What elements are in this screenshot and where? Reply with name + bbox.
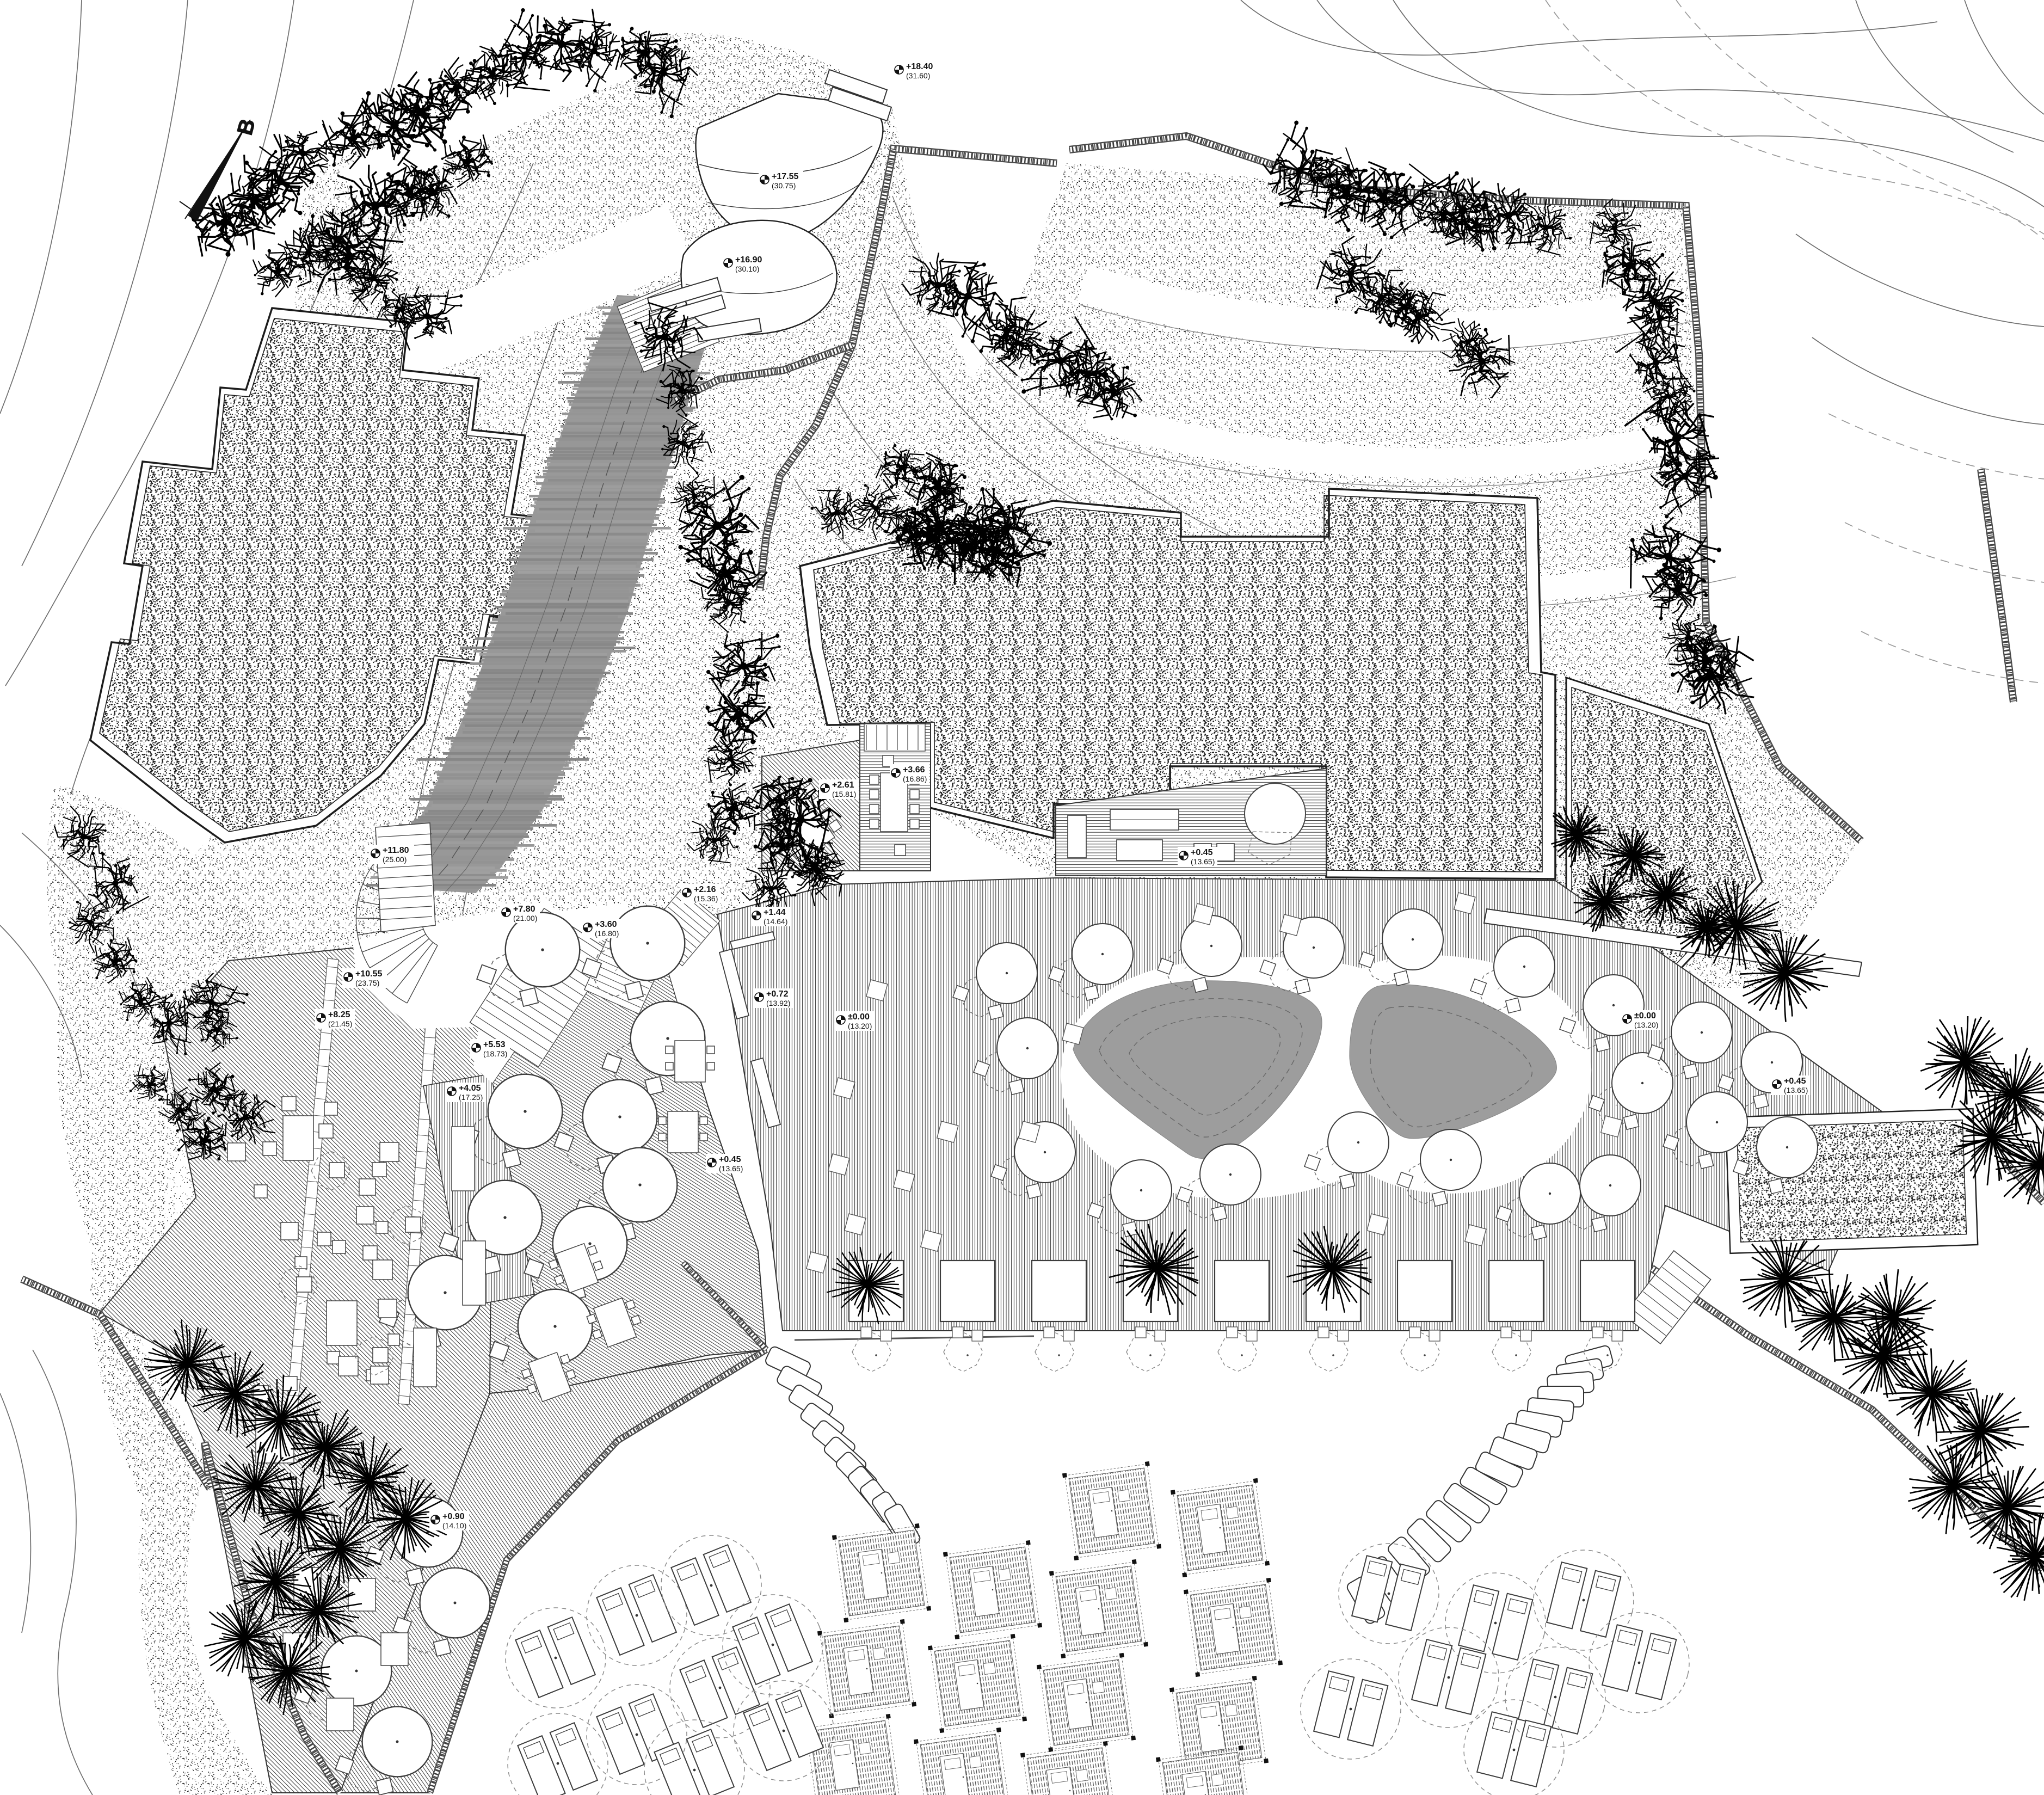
- svg-text:(30.10): (30.10): [735, 265, 759, 273]
- svg-text:±0.00: ±0.00: [848, 1012, 870, 1022]
- svg-text:±0.00: ±0.00: [1634, 1011, 1656, 1021]
- svg-text:(21.45): (21.45): [328, 1019, 352, 1028]
- svg-text:+2.16: +2.16: [694, 885, 716, 894]
- svg-text:+5.53: +5.53: [483, 1040, 506, 1049]
- svg-text:+16.90: +16.90: [735, 255, 762, 265]
- svg-text:(16.80): (16.80): [595, 929, 619, 938]
- svg-text:+0.45: +0.45: [1191, 848, 1213, 857]
- svg-text:(13.92): (13.92): [766, 999, 790, 1007]
- svg-text:(13.20): (13.20): [1634, 1021, 1658, 1029]
- svg-text:(13.65): (13.65): [719, 1164, 743, 1173]
- svg-text:+3.66: +3.66: [903, 765, 925, 774]
- svg-text:(17.25): (17.25): [459, 1093, 483, 1102]
- svg-text:(13.20): (13.20): [848, 1022, 872, 1030]
- svg-text:+18.40: +18.40: [906, 62, 933, 71]
- svg-text:(30.75): (30.75): [772, 181, 796, 190]
- svg-text:(15.36): (15.36): [694, 894, 718, 903]
- svg-text:(14.64): (14.64): [764, 917, 787, 926]
- svg-text:+0.72: +0.72: [766, 989, 789, 999]
- svg-text:+17.55: +17.55: [772, 172, 798, 181]
- svg-text:(16.86): (16.86): [903, 774, 927, 783]
- svg-text:(18.73): (18.73): [483, 1049, 507, 1058]
- svg-text:+0.45: +0.45: [1784, 1077, 1806, 1086]
- svg-text:(23.75): (23.75): [355, 979, 379, 987]
- svg-text:(14.10): (14.10): [442, 1521, 466, 1530]
- svg-text:(15.81): (15.81): [832, 790, 856, 798]
- svg-text:(31.60): (31.60): [906, 71, 930, 80]
- svg-text:+11.80: +11.80: [383, 846, 409, 855]
- svg-text:+4.05: +4.05: [459, 1084, 481, 1093]
- svg-text:+10.55: +10.55: [355, 969, 382, 979]
- svg-text:+1.44: +1.44: [764, 908, 786, 917]
- svg-text:(13.65): (13.65): [1784, 1086, 1808, 1095]
- svg-text:(13.65): (13.65): [1191, 857, 1215, 866]
- svg-text:+3.60: +3.60: [595, 920, 617, 929]
- svg-text:(25.00): (25.00): [383, 855, 407, 864]
- svg-text:+7.80: +7.80: [513, 905, 535, 914]
- svg-text:+8.25: +8.25: [328, 1010, 350, 1019]
- svg-text:+0.90: +0.90: [442, 1512, 465, 1521]
- svg-text:(21.00): (21.00): [513, 914, 537, 923]
- svg-text:+2.61: +2.61: [832, 780, 854, 790]
- svg-text:+0.45: +0.45: [719, 1155, 741, 1164]
